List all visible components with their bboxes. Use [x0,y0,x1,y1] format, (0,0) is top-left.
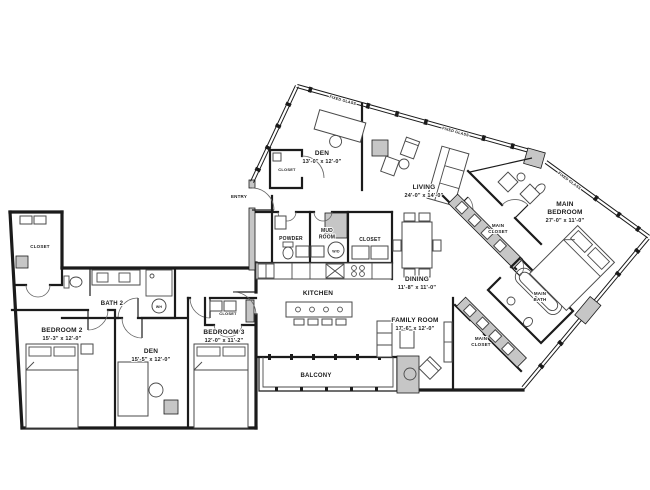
door-leaf [515,205,528,218]
desk-chair [149,383,163,397]
main-closet-lower-label-2: CLOSET [471,342,491,347]
mullion-tick [356,354,359,360]
den-lower-dims: 15'-5" x 12'-0" [132,357,171,363]
main-bedroom-label-1: MAIN [556,201,574,208]
closet-label: CLOSET [359,237,380,243]
mullion-tick [616,211,622,218]
armchair-icon [381,156,400,176]
dining-chair [404,213,415,221]
entry-label: ENTRY [231,194,247,199]
main-closet-upper-label-2: CLOSET [488,229,508,234]
shelf-box [224,301,236,311]
lounge-chair-icon [498,172,518,192]
dining-table [402,222,432,268]
shelf-box [20,216,32,224]
dining-chair [433,240,441,251]
wall-poche [249,208,255,270]
rail-tick [350,387,353,391]
den-lower: DEN 15'-5" x 12'-0" [115,298,188,428]
bedroom3-label: BEDROOM 3 [203,329,244,336]
vanity-icon [92,270,140,285]
entry-door: ENTRY [231,188,274,210]
rail-tick [375,387,378,391]
bed-icon [26,344,78,428]
chair-seat [400,137,419,159]
corner-column [524,148,546,168]
column-poche [164,400,178,414]
slider-panel [575,297,601,324]
balcony: BALCONY [259,356,419,393]
wall [14,268,62,285]
mud-room-label-2: ROOM [319,235,335,241]
family-room-dims: 17'-6" x 12'-0" [396,326,435,332]
closet-label: CLOSET [278,167,296,172]
mullion-tick [557,340,564,346]
dining-chair [419,213,430,221]
rail-tick [325,387,328,391]
closet-label: CLOSET [219,311,237,316]
dining-dims: 11'-8" x 11'-0" [398,285,437,291]
door-arc [88,310,108,330]
mullion-tick [312,354,315,360]
main-bedroom-dims: 27'-0" x 11'-0" [546,218,585,224]
stool-icon [336,319,346,325]
main-closet-upper [448,194,522,268]
wall [470,158,532,172]
bedroom3-dims: 12'-0" x 11'-2" [205,338,244,344]
washer-dryer-label: W/D [332,250,340,254]
shelf-box [371,246,388,259]
main-closet-upper-label-1: MAIN [492,223,504,228]
shelf-box [34,216,46,224]
door-arc [190,298,210,318]
mullion-tick [634,248,641,254]
family-room-label: FAMILY ROOM [391,317,438,324]
balcony-inner-rail [263,357,393,387]
floor-plan-drawing: FIXED GLASS FIXED GLASS FIXED GLASS [0,0,650,490]
closet-label: CLOSET [30,244,50,249]
door-arc [122,318,142,338]
kitchen: KITCHEN [256,263,392,325]
chair-seat [381,156,400,176]
glass-label: FIXED GLASS [329,95,357,106]
shelf-box [210,301,222,311]
mullion-tick [615,271,622,277]
chair-seat [498,172,518,192]
living-dims: 24'-0" x 14'-0" [405,193,444,199]
chair-icon [400,330,414,348]
side-table-icon [399,159,409,169]
balcony-label: BALCONY [300,373,331,379]
living-room: LIVING 24'-0" x 14'-0" [372,137,469,206]
bedroom2-dims: 15'-3" x 12'-0" [43,336,82,342]
mullion-tick [290,354,293,360]
sink-icon [507,297,515,305]
kitchen-label: KITCHEN [303,290,333,297]
shelf-box [352,246,369,259]
main-closet-lower [456,297,526,367]
mullion-tick [334,354,337,360]
sink-icon [275,216,286,229]
water-heater-label: WH [156,305,163,309]
desk-icon [311,110,366,154]
column-poche [16,256,28,268]
wall [10,212,22,428]
mullion-tick [268,354,271,360]
family-room: FAMILY ROOM 17'-6" x 12'-0" [377,317,452,380]
door-arc [26,285,50,297]
dining-room: DINING 11'-8" x 11'-0" [393,213,441,291]
glass-label: FIXED GLASS [557,171,582,191]
coffee-table-icon [372,140,388,156]
living-label: LIVING [413,184,436,191]
bench-icon [296,246,309,257]
balcony-slider-wall [256,354,397,360]
chair-seat [419,357,442,380]
dining-chair [393,240,401,251]
main-bath-label-2: BATH [534,297,547,302]
bench-icon [311,246,324,257]
mullion-tick [593,195,599,202]
stool-icon [294,319,304,325]
bookshelf-icon [377,321,392,357]
bed-icon [194,344,248,428]
stool-icon [322,319,332,325]
side-table-icon [517,173,525,181]
dining-label: DINING [405,276,429,283]
main-bedroom-label-2: BEDROOM [547,209,582,216]
toilet-tank [283,242,293,247]
shower-head [150,274,154,278]
main-bedroom: MAIN BEDROOM 27'-0" x 11'-0" [498,172,614,310]
column-poche [524,148,546,168]
mullion-tick [635,226,641,233]
shelf-box [273,153,281,161]
floor-plan: FIXED GLASS FIXED GLASS FIXED GLASS [0,0,650,490]
rail-tick [275,387,278,391]
powder-label: POWDER [279,236,303,242]
shower-icon [146,270,172,296]
door-arc [252,188,274,210]
armchair-icon [419,357,442,380]
mullion-tick [538,363,545,369]
toilet-icon [70,277,82,287]
nightstand-icon [81,344,93,354]
stool-icon [308,319,318,325]
glass-wall-northeast: FIXED GLASS [544,160,650,240]
bath2-label: BATH 2 [101,301,124,307]
main-closet-lower-label-1: MAIN [475,336,487,341]
bedroom2-closet: CLOSET [14,216,62,297]
den-upper: DEN 13'-0" x 12'-0" [303,110,366,165]
den-upper-dims: 13'-0" x 12'-0" [303,159,342,165]
main-bath-label-1: MAIN [534,291,546,296]
door-arc [502,199,528,205]
bedroom-2: BEDROOM 2 15'-3" x 12'-0" [12,310,115,428]
glass-label: FIXED GLASS [442,126,470,137]
bedroom2-label: BEDROOM 2 [41,327,82,334]
den-upper-label: DEN [315,150,329,157]
bedroom-3: CLOSET BEDROOM 3 12'-0" x 11'-2" [188,298,256,428]
hall-closet: CLOSET [352,237,388,259]
toilet-tank [64,276,69,288]
toilet-icon [283,247,293,259]
mud-room-label-1: MUD [321,228,333,234]
desk-icon [118,362,148,416]
rail-tick [300,387,303,391]
armchair-icon [400,137,419,159]
den-lower-label: DEN [144,348,158,355]
